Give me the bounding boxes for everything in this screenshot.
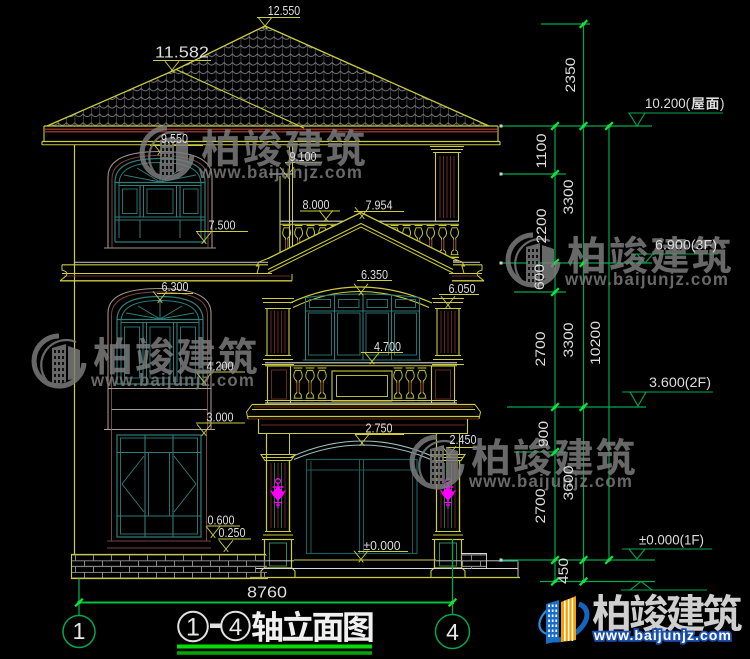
svg-text:1100: 1100 <box>533 133 549 168</box>
svg-text:www.baijunjz.com: www.baijunjz.com <box>468 471 633 491</box>
svg-text:4: 4 <box>446 619 459 645</box>
svg-text:±0.000: ±0.000 <box>364 539 401 553</box>
svg-text:4.200: 4.200 <box>207 360 234 374</box>
svg-text:6.300: 6.300 <box>162 280 189 294</box>
svg-text:11.582: 11.582 <box>155 45 209 62</box>
svg-text:9.550: 9.550 <box>161 132 188 146</box>
svg-text:www.baijunjz.com: www.baijunjz.com <box>564 269 729 289</box>
svg-text:600: 600 <box>531 264 547 290</box>
svg-text:3600: 3600 <box>560 465 576 500</box>
svg-text:12.550: 12.550 <box>268 4 300 18</box>
svg-text:2.750: 2.750 <box>366 422 393 436</box>
svg-text:450: 450 <box>555 558 571 584</box>
svg-text:0.250: 0.250 <box>219 526 246 540</box>
svg-text:7.954: 7.954 <box>366 199 393 213</box>
svg-text:±0.000(1F): ±0.000(1F) <box>639 533 704 548</box>
svg-text:2700: 2700 <box>532 488 548 523</box>
svg-text:2200: 2200 <box>533 208 549 243</box>
svg-text:6.050: 6.050 <box>449 282 476 296</box>
svg-text:900: 900 <box>535 421 551 447</box>
svg-text:8760: 8760 <box>247 585 287 602</box>
svg-text:6.350: 6.350 <box>361 268 388 282</box>
svg-text:8.000: 8.000 <box>303 198 330 212</box>
svg-text:3.600(2F): 3.600(2F) <box>649 375 711 390</box>
svg-text:7.500: 7.500 <box>209 219 236 233</box>
svg-text:10.200(: 10.200( <box>645 96 690 111</box>
svg-text:2.450: 2.450 <box>450 433 477 447</box>
svg-text:3.000: 3.000 <box>207 411 234 425</box>
svg-text:4.700: 4.700 <box>374 340 401 354</box>
svg-text:10200: 10200 <box>587 321 603 365</box>
svg-text:3300: 3300 <box>560 179 576 214</box>
svg-text:4: 4 <box>229 614 242 641</box>
svg-text:6.900(3F): 6.900(3F) <box>655 238 717 253</box>
svg-text:1: 1 <box>73 618 86 644</box>
svg-text:9.100: 9.100 <box>290 150 317 164</box>
svg-text:2350: 2350 <box>562 57 578 92</box>
svg-text:www.baijunjz.com: www.baijunjz.com <box>593 627 732 643</box>
svg-text:): ) <box>720 96 725 111</box>
svg-text:3300: 3300 <box>560 322 576 357</box>
svg-text:1: 1 <box>186 614 200 642</box>
svg-text:www.baijunjz.com: www.baijunjz.com <box>198 162 363 182</box>
svg-text:2700: 2700 <box>532 331 548 366</box>
